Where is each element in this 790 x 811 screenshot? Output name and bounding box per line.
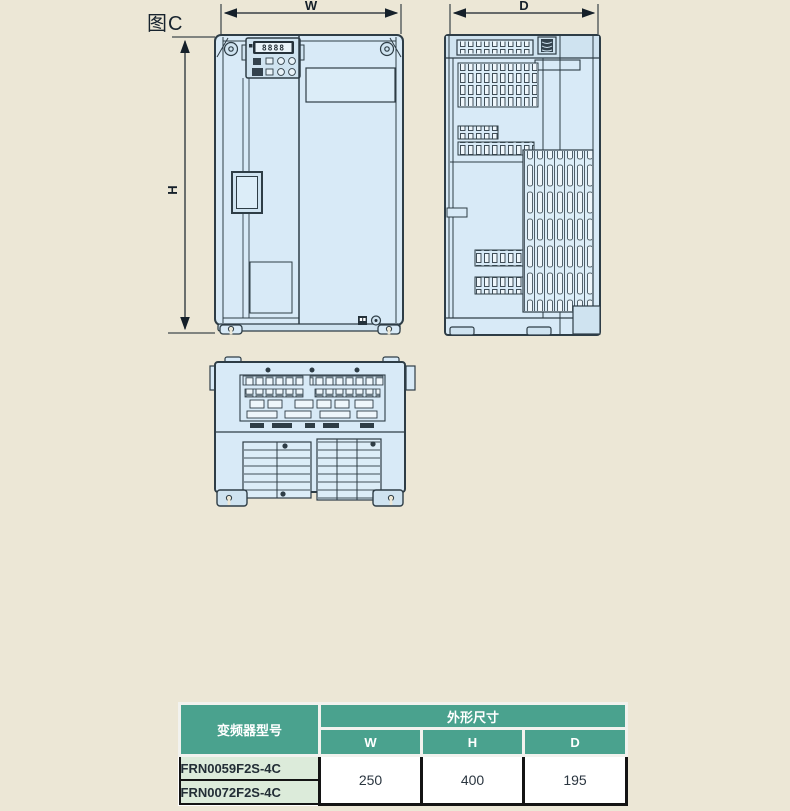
page: { "figure_label": "图C", "dimension_label… <box>0 0 790 811</box>
heatsink-fins <box>524 151 592 311</box>
table-row: FRN0059F2S-4C 250 400 195 <box>180 756 627 781</box>
model-cell-1: FRN0059F2S-4C <box>180 756 320 781</box>
base-step <box>573 306 600 334</box>
keypad-display: 8888 <box>262 44 285 53</box>
model-cell-2: FRN0072F2S-4C <box>180 780 320 804</box>
h-dimension <box>168 37 215 333</box>
side-tab <box>447 208 467 217</box>
spring-clip <box>538 37 556 54</box>
value-d: 195 <box>524 756 627 805</box>
model-header-cell: 变频器型号 <box>180 704 320 756</box>
h-dimension-label: H <box>168 185 180 194</box>
d-dimension-label: D <box>519 0 528 13</box>
dimension-table: 变频器型号 外形尺寸 W H D FRN0059F2S-4C 250 400 1… <box>178 702 628 806</box>
side-device <box>445 35 600 335</box>
w-dimension-label: W <box>305 0 318 13</box>
side-access-window <box>232 172 262 213</box>
col-header-h: H <box>422 729 524 756</box>
warning-label <box>358 316 367 325</box>
bottom-view-drawing <box>205 350 420 515</box>
col-header-d: D <box>524 729 627 756</box>
size-header-cell: 外形尺寸 <box>320 704 627 729</box>
value-w: 250 <box>320 756 422 805</box>
upper-vent-block <box>459 64 537 106</box>
bottom-screw <box>372 316 381 325</box>
value-h: 400 <box>422 756 524 805</box>
front-view-drawing: W H <box>168 0 420 350</box>
rating-label-area <box>306 68 395 102</box>
top-vent-strip <box>459 42 531 54</box>
col-header-w: W <box>320 729 422 756</box>
front-device: 8888 <box>215 35 403 334</box>
bottom-device <box>210 357 415 506</box>
side-view-drawing: D <box>435 0 620 350</box>
keypad-panel: 8888 <box>242 38 304 78</box>
